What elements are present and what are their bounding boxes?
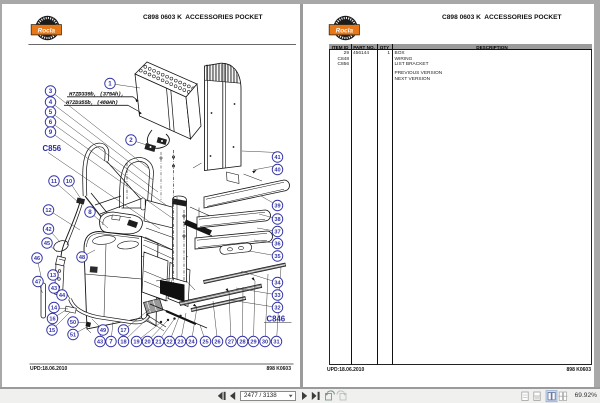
svg-text:8: 8	[88, 209, 92, 216]
svg-text:5: 5	[49, 109, 53, 116]
svg-text:28: 28	[239, 340, 245, 346]
svg-text:49: 49	[100, 328, 106, 334]
svg-text:12: 12	[45, 208, 51, 214]
svg-text:7: 7	[109, 339, 113, 346]
svg-text:42: 42	[45, 227, 51, 233]
svg-text:23: 23	[177, 340, 183, 346]
svg-text:27: 27	[228, 340, 234, 346]
svg-text:32: 32	[274, 306, 280, 312]
svg-text:1: 1	[108, 81, 112, 88]
svg-text:16: 16	[49, 317, 55, 323]
svg-text:10: 10	[66, 179, 72, 185]
svg-text:43: 43	[51, 286, 57, 292]
svg-text:2: 2	[129, 137, 133, 144]
svg-text:15: 15	[49, 328, 55, 334]
svg-text:48: 48	[79, 255, 85, 261]
svg-text:51: 51	[70, 333, 76, 339]
svg-text:45: 45	[44, 241, 50, 247]
svg-text:19: 19	[133, 340, 139, 346]
svg-text:37: 37	[274, 230, 280, 236]
svg-text:36: 36	[274, 242, 280, 248]
svg-text:4: 4	[49, 99, 53, 106]
svg-text:18: 18	[120, 340, 126, 346]
svg-text:40: 40	[274, 168, 280, 174]
svg-text:6: 6	[49, 119, 53, 126]
svg-text:38: 38	[274, 217, 280, 223]
svg-text:20: 20	[144, 340, 150, 346]
svg-text:26: 26	[214, 340, 220, 346]
svg-text:25: 25	[202, 340, 208, 346]
svg-text:46: 46	[34, 256, 40, 262]
svg-text:Rocla: Rocla	[336, 28, 354, 35]
svg-text:22: 22	[166, 340, 172, 346]
svg-text:3: 3	[49, 88, 53, 95]
svg-text:C856: C856	[43, 144, 62, 153]
svg-text:41: 41	[274, 155, 280, 161]
svg-text:29: 29	[250, 340, 256, 346]
svg-text:13: 13	[50, 273, 56, 279]
svg-text:39: 39	[274, 204, 280, 210]
svg-text:14: 14	[51, 306, 58, 312]
svg-text:50: 50	[70, 320, 76, 326]
svg-text:44: 44	[59, 293, 66, 299]
svg-text:30: 30	[262, 340, 268, 346]
svg-text:35: 35	[274, 254, 280, 260]
svg-text:9: 9	[49, 129, 53, 136]
svg-text:C846: C846	[267, 315, 286, 324]
svg-text:11: 11	[51, 179, 57, 185]
svg-text:24: 24	[188, 340, 195, 346]
svg-text:21: 21	[155, 340, 161, 346]
svg-text:47: 47	[35, 280, 41, 286]
svg-text:43: 43	[97, 340, 103, 346]
svg-text:Rocla: Rocla	[38, 28, 56, 35]
svg-text:31: 31	[273, 340, 279, 346]
svg-text:17: 17	[120, 328, 126, 334]
svg-text:34: 34	[274, 281, 281, 287]
svg-text:33: 33	[274, 293, 280, 299]
